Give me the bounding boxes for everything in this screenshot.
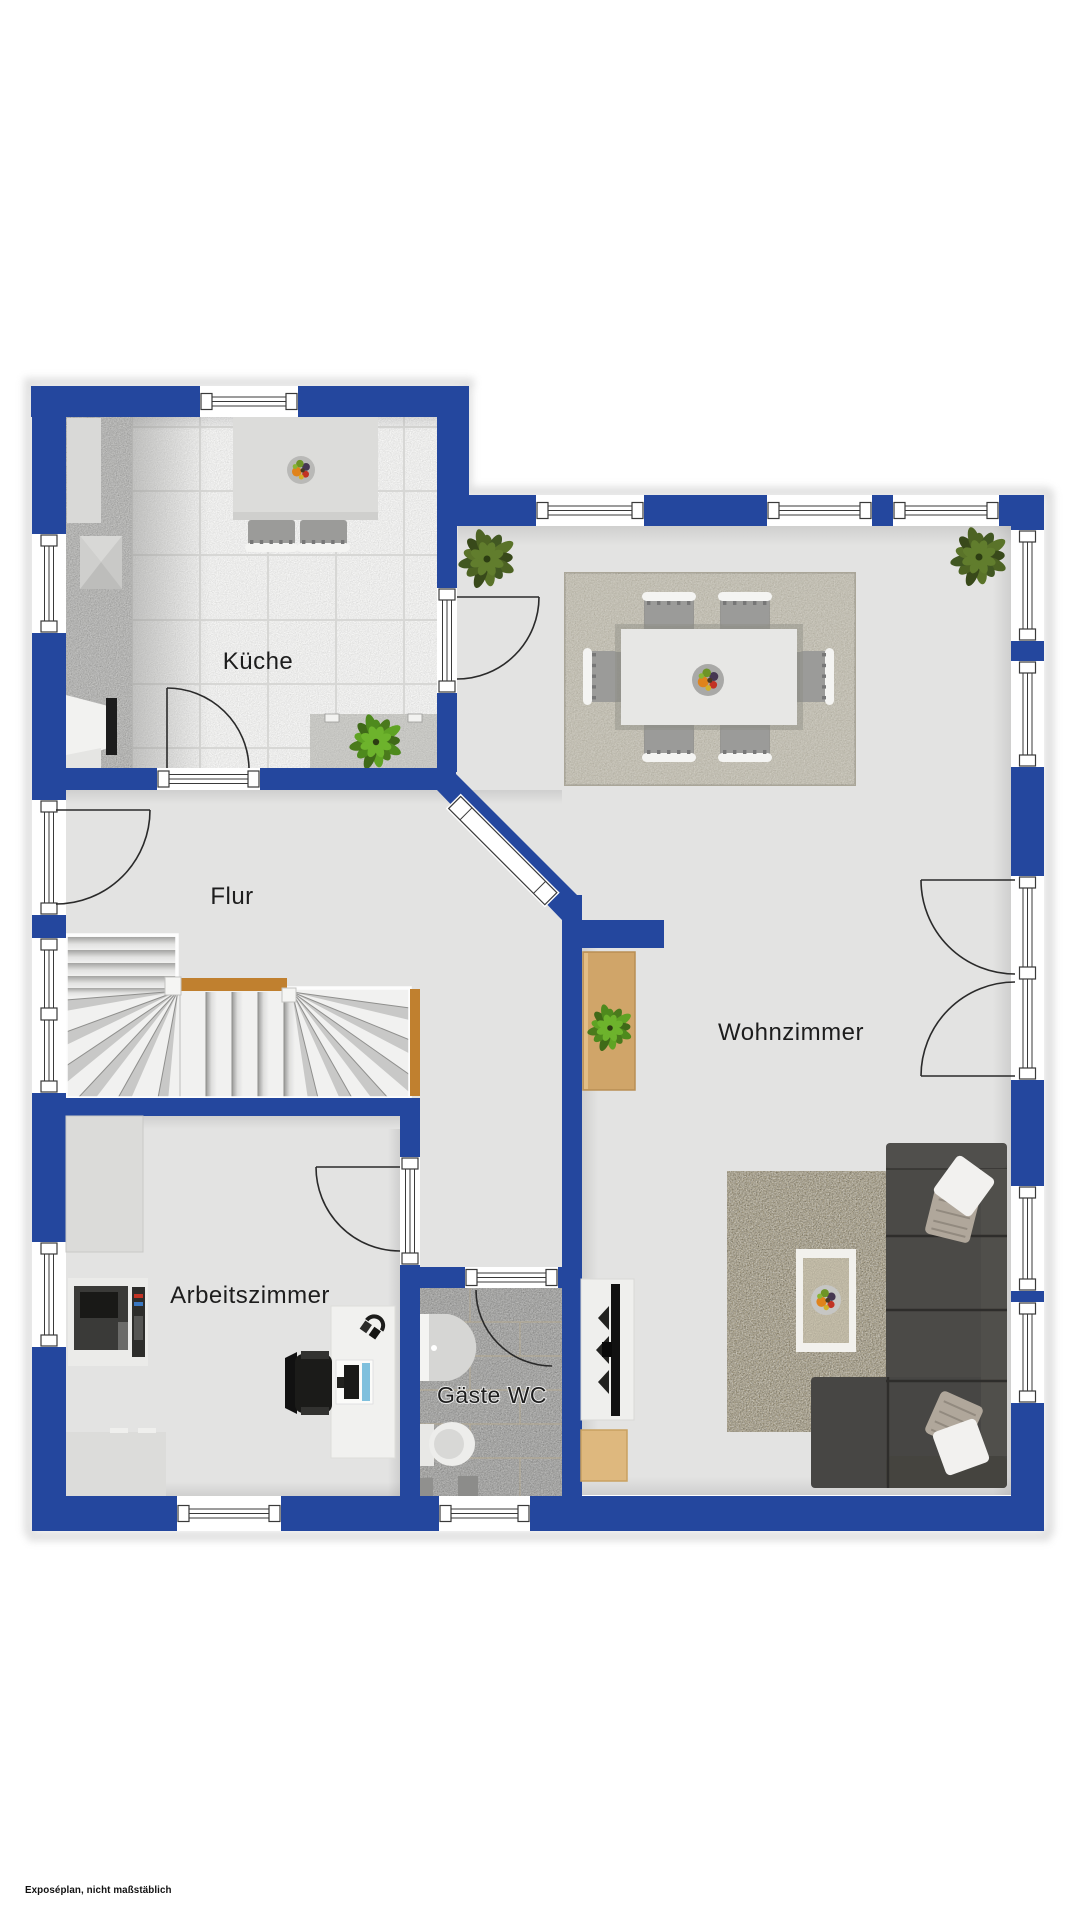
svg-text:Arbeitszimmer: Arbeitszimmer (170, 1282, 330, 1309)
svg-text:Wohnzimmer: Wohnzimmer (718, 1019, 864, 1046)
svg-text:Flur: Flur (210, 883, 253, 910)
svg-text:Gäste WC: Gäste WC (437, 1382, 547, 1408)
svg-text:Küche: Küche (223, 648, 294, 675)
